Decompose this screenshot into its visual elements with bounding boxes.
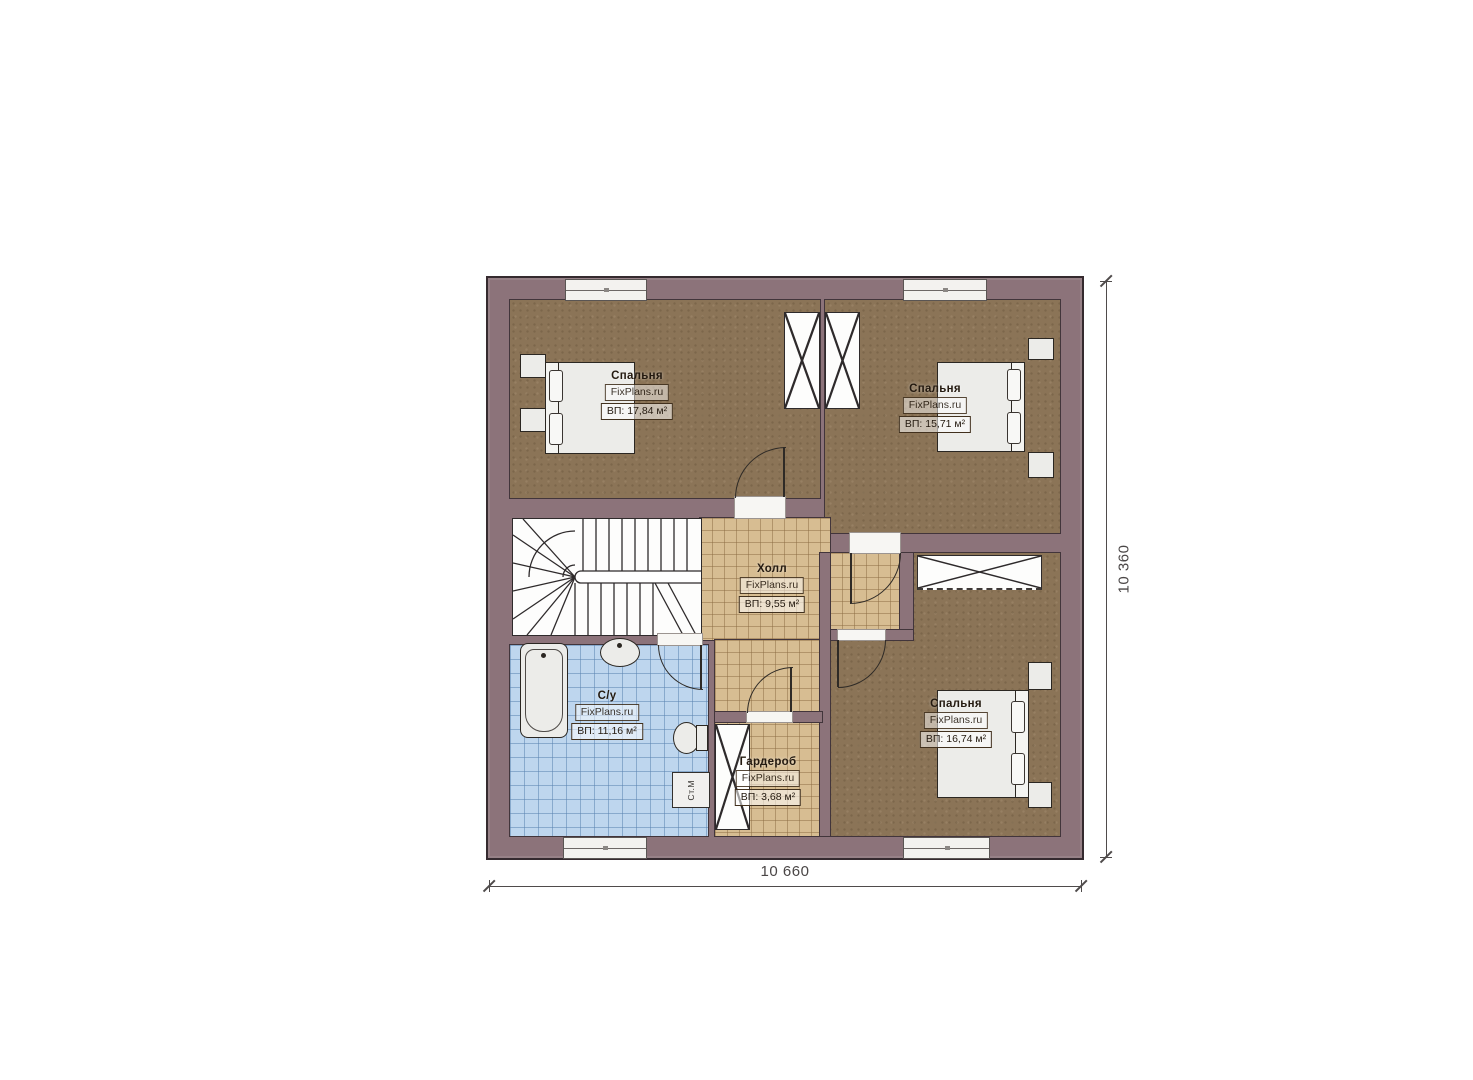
floor-plan-canvas: Ст.М Спальня FixPlans.ru ВП: 17,84 м² Сп… xyxy=(0,0,1473,1080)
room-area: ВП: 9,55 м² xyxy=(739,596,805,613)
bathtub-drain xyxy=(541,653,546,658)
dimension-width-line xyxy=(489,886,1081,887)
toilet-tank xyxy=(696,725,708,751)
brand-watermark: FixPlans.ru xyxy=(903,397,968,414)
floor-plan: Ст.М Спальня FixPlans.ru ВП: 17,84 м² Сп… xyxy=(488,278,1082,858)
window xyxy=(903,279,987,301)
room-name: Гардероб xyxy=(740,756,797,768)
washing-machine: Ст.М xyxy=(672,772,710,808)
sink xyxy=(600,638,640,667)
sink-faucet xyxy=(617,643,622,648)
room-label-bedroom-top-left: Спальня FixPlans.ru ВП: 17,84 м² xyxy=(601,370,673,420)
dimension-width-label: 10 660 xyxy=(489,863,1081,880)
room-label-wardrobe: Гардероб FixPlans.ru ВП: 3,68 м² xyxy=(735,756,801,806)
wall-segment xyxy=(820,553,830,836)
pillow xyxy=(1011,701,1025,733)
room-label-hall: Холл FixPlans.ru ВП: 9,55 м² xyxy=(739,563,805,613)
staircase-treads xyxy=(513,519,701,635)
room-name: Холл xyxy=(757,563,787,575)
staircase xyxy=(512,518,702,636)
pillow xyxy=(1007,369,1021,401)
door-opening xyxy=(838,630,885,640)
nightstand xyxy=(1028,452,1054,478)
door-leaf xyxy=(783,447,785,497)
door-opening xyxy=(747,712,792,722)
closet xyxy=(917,555,1042,590)
nightstand xyxy=(520,408,546,432)
nightstand xyxy=(1028,662,1052,690)
brand-watermark: FixPlans.ru xyxy=(575,704,640,721)
nightstand xyxy=(520,354,546,378)
nightstand xyxy=(1028,338,1054,360)
washing-machine-label: Ст.М xyxy=(686,780,696,801)
pillow xyxy=(1007,412,1021,444)
window xyxy=(563,837,647,859)
room-label-bedroom-top-right: Спальня FixPlans.ru ВП: 15,71 м² xyxy=(899,383,971,433)
pillow xyxy=(549,413,563,445)
dimension-height-line xyxy=(1106,281,1107,857)
bathtub-basin xyxy=(525,649,563,732)
brand-watermark: FixPlans.ru xyxy=(605,384,670,401)
room-area: ВП: 16,74 м² xyxy=(920,731,992,748)
room-name: С/у xyxy=(598,690,617,702)
closet xyxy=(784,312,820,409)
room-area: ВП: 3,68 м² xyxy=(735,789,801,806)
door-opening xyxy=(735,497,785,518)
room-name: Спальня xyxy=(611,370,663,382)
pillow xyxy=(549,370,563,402)
bathtub xyxy=(520,643,568,738)
closet xyxy=(825,312,860,409)
room-label-bathroom: С/у FixPlans.ru ВП: 11,16 м² xyxy=(571,690,643,740)
window xyxy=(903,837,990,859)
room-area: ВП: 17,84 м² xyxy=(601,403,673,420)
window xyxy=(565,279,647,301)
pillow xyxy=(1011,753,1025,785)
brand-watermark: FixPlans.ru xyxy=(924,712,989,729)
room-name: Спальня xyxy=(930,698,982,710)
door-opening xyxy=(658,634,702,645)
door-leaf xyxy=(850,553,852,603)
brand-watermark: FixPlans.ru xyxy=(736,770,801,787)
room-area: ВП: 15,71 м² xyxy=(899,416,971,433)
door-opening xyxy=(850,533,900,553)
door-leaf xyxy=(837,640,839,687)
room-label-bedroom-bottom-right: Спальня FixPlans.ru ВП: 16,74 м² xyxy=(920,698,992,748)
room-name: Спальня xyxy=(909,383,961,395)
nightstand xyxy=(1028,782,1052,808)
wall-segment xyxy=(900,553,913,640)
brand-watermark: FixPlans.ru xyxy=(740,577,805,594)
dimension-height-label: 10 360 xyxy=(1116,545,1133,594)
door-leaf xyxy=(790,667,792,712)
room-area: ВП: 11,16 м² xyxy=(571,723,643,740)
door-leaf xyxy=(700,645,702,689)
